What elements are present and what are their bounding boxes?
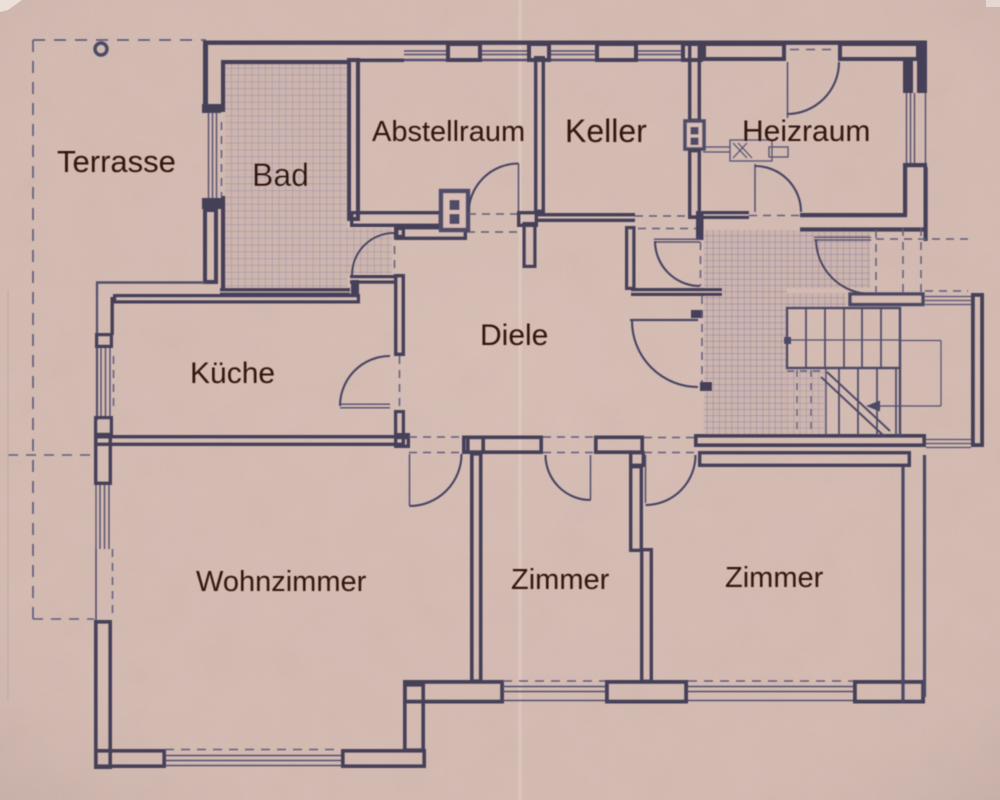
svg-text:Diele: Diele	[480, 319, 548, 352]
svg-text:Wohnzimmer: Wohnzimmer	[196, 566, 367, 598]
svg-text:Heizraum: Heizraum	[742, 115, 870, 148]
svg-text:Bad: Bad	[252, 157, 309, 193]
svg-text:Terrasse: Terrasse	[57, 144, 176, 179]
svg-text:Zimmer: Zimmer	[511, 564, 610, 596]
svg-text:Küche: Küche	[190, 357, 275, 390]
svg-text:Keller: Keller	[565, 113, 647, 149]
svg-text:Zimmer: Zimmer	[725, 562, 824, 594]
svg-text:Abstellraum: Abstellraum	[372, 116, 525, 148]
